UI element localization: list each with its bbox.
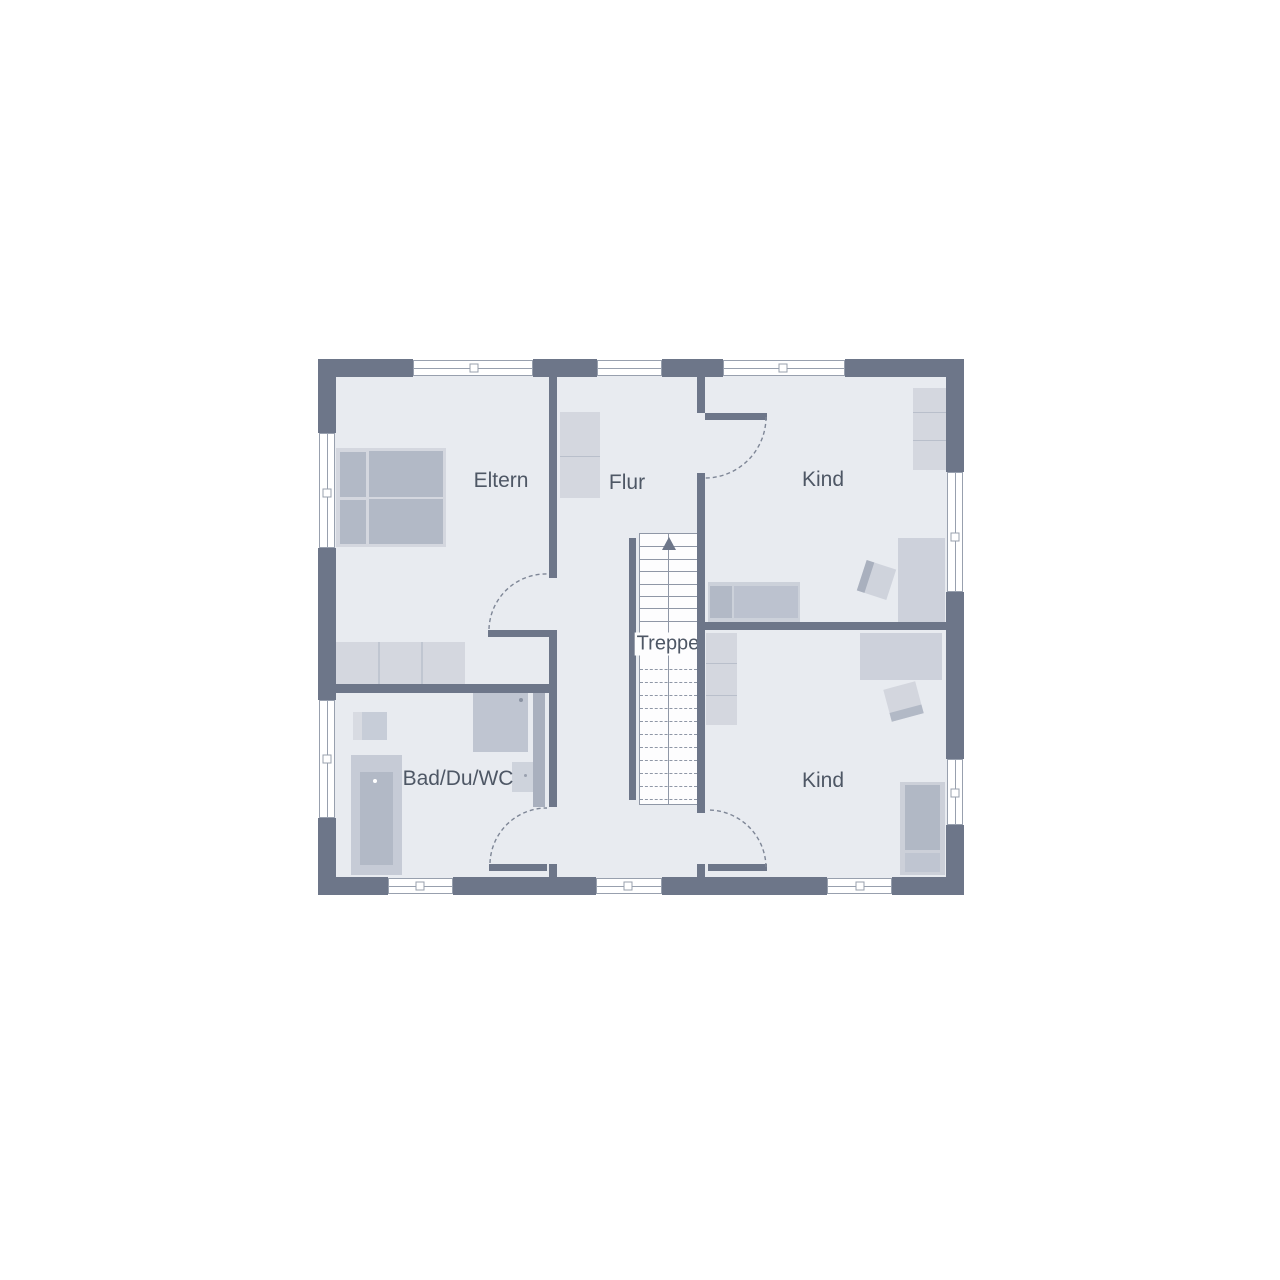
room-label-kind-top: Kind: [802, 468, 844, 492]
window: [947, 759, 963, 825]
floor-plan: Treppe: [0, 0, 1280, 1280]
wall-eltern-flur: [549, 377, 557, 578]
wall-outer-top: [662, 359, 723, 377]
window: [827, 878, 892, 894]
stair-tread-dashed: [640, 695, 697, 696]
wall-kind-stub: [697, 864, 705, 877]
stair-tread: [640, 584, 697, 585]
wall-outer-left: [318, 548, 336, 700]
bed-kind-top: [708, 582, 800, 622]
room-label-bad: Bad/Du/WC: [403, 767, 514, 791]
door-leaf-eltern: [488, 630, 549, 637]
wardrobe-kind-bottom: [706, 633, 737, 725]
wall-outer-bottom: [662, 877, 827, 895]
window-handle: [323, 489, 332, 498]
wall-between-kind: [705, 622, 946, 630]
room-label-treppe: Treppe: [635, 633, 702, 656]
wall-outer-right: [946, 359, 964, 472]
bed-mattress: [734, 586, 798, 618]
stair-side-wall: [629, 538, 636, 800]
stair-tread: [640, 596, 697, 597]
bed-pillow: [710, 586, 732, 618]
window: [723, 360, 845, 376]
wall-outer-bottom: [453, 877, 596, 895]
stair-tread-dashed: [640, 773, 697, 774]
wall-outer-left: [318, 359, 336, 433]
wall-eltern-flur: [549, 630, 557, 807]
window: [597, 360, 662, 376]
stair-tread-dashed: [640, 747, 697, 748]
shower-head: [519, 698, 523, 702]
bed-pillow: [905, 853, 940, 872]
window-handle: [470, 364, 479, 373]
door-leaf-kind-top: [705, 413, 767, 420]
sink-shelf: [353, 712, 362, 740]
bed-mattress: [905, 785, 940, 850]
bed-mattress: [369, 451, 443, 497]
stair-tread: [640, 608, 697, 609]
desk-kind-top: [898, 538, 945, 622]
wall-flur-kind: [697, 377, 705, 413]
desk-kind-bottom: [860, 633, 942, 680]
bed-eltern: [336, 448, 446, 547]
stair-tread: [640, 621, 697, 622]
up-arrow-icon: [662, 537, 676, 550]
room-label-flur: Flur: [609, 471, 645, 495]
wall-bad-stub: [549, 864, 557, 877]
bed-pillow: [340, 452, 366, 497]
stair-tread-dashed: [640, 708, 697, 709]
window-handle: [323, 755, 332, 764]
staircase: [639, 533, 698, 805]
wall-flur-kind: [697, 473, 705, 813]
room-label-kind-bottom: Kind: [802, 769, 844, 793]
window: [947, 472, 963, 592]
bathtub: [351, 755, 402, 875]
bath-cabinet: [533, 693, 545, 807]
bed-mattress: [369, 499, 443, 544]
wardrobe-kind-top: [913, 388, 946, 470]
stair-tread-dashed: [640, 760, 697, 761]
wardrobe-divider: [560, 456, 600, 457]
wc-flush: [524, 774, 527, 777]
dresser-divider: [378, 642, 380, 684]
wall-outer-right: [946, 825, 964, 895]
stair-tread-dashed: [640, 799, 697, 800]
wardrobe-divider: [706, 663, 737, 664]
window: [596, 878, 662, 894]
stair-tread-dashed: [640, 734, 697, 735]
window-handle: [624, 882, 633, 891]
stair-tread: [640, 571, 697, 572]
bed-kind-bottom: [900, 782, 945, 875]
wall-outer-top: [533, 359, 597, 377]
bathtub-basin: [360, 772, 393, 865]
door-leaf-bad: [489, 864, 547, 871]
wardrobe-divider: [913, 440, 946, 441]
room-label-eltern: Eltern: [474, 469, 529, 493]
stair-tread-dashed: [640, 669, 697, 670]
stair-tread-dashed: [640, 682, 697, 683]
wardrobe-flur: [560, 412, 600, 498]
bathtub-drain: [373, 779, 377, 783]
window-handle: [951, 533, 960, 542]
dresser-divider: [421, 642, 423, 684]
stair-tread-dashed: [640, 786, 697, 787]
wall-bad-top: [336, 684, 557, 693]
window-handle: [856, 882, 865, 891]
stair-treads: [640, 534, 697, 804]
window-pane-line: [598, 368, 661, 369]
window-handle: [416, 882, 425, 891]
shower: [473, 693, 528, 752]
wall-outer-left: [318, 818, 336, 895]
wardrobe-divider: [706, 695, 737, 696]
dresser-eltern: [335, 642, 465, 684]
window-handle: [779, 364, 788, 373]
door-leaf-kind-bottom: [708, 864, 767, 871]
sink: [353, 712, 387, 740]
window-handle: [951, 789, 960, 798]
window: [413, 360, 533, 376]
wardrobe-divider: [913, 412, 946, 413]
window: [319, 433, 335, 548]
stair-tread: [640, 559, 697, 560]
stair-tread-dashed: [640, 721, 697, 722]
wc-toilet: [512, 762, 533, 792]
window: [319, 700, 335, 818]
wall-outer-right: [946, 592, 964, 759]
window: [388, 878, 453, 894]
bed-pillow: [340, 500, 366, 544]
